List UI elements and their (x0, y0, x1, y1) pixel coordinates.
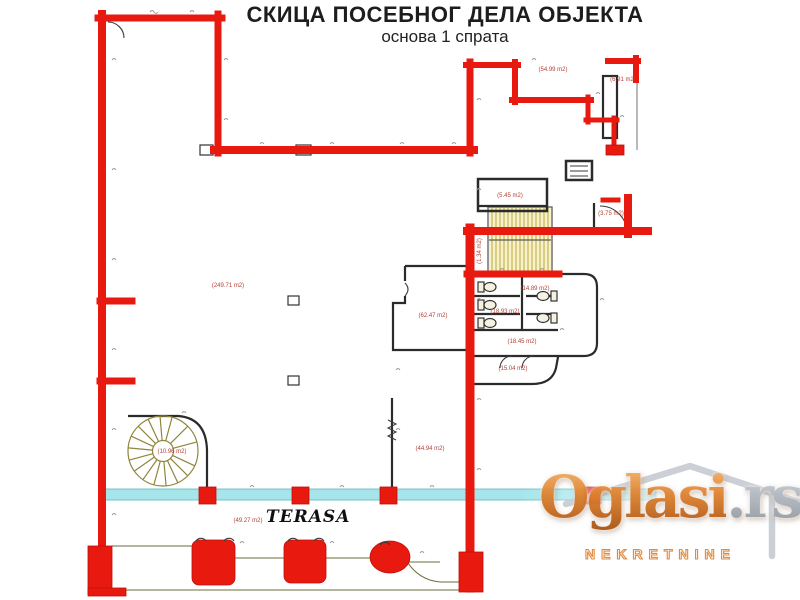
room-label-top-right-small: (6.91 m2) (610, 77, 636, 83)
room-label-office-upper: (62.47 m2) (418, 313, 447, 319)
room-label-main-hall: (249.71 m2) (212, 283, 244, 289)
watermark-brand-tld: .rs (726, 463, 800, 531)
room-label-lower-hall: (15.04 m2) (498, 366, 527, 372)
room-label-anteroom: (18.45 m2) (507, 339, 536, 345)
terrace-caption: TERASA (266, 507, 350, 527)
watermark-oglasi: Oglasi.rs NEKRETNINE (538, 458, 800, 578)
room-label-toilet-right: (14.89 m2) (520, 286, 549, 292)
watermark-tagline: NEKRETNINE (585, 546, 736, 562)
watermark-brand: Oglasi.rs (539, 468, 800, 526)
room-label-toilet-left: (18.93 m2) (490, 309, 519, 315)
room-label-spiral-stair: (10.96 m2) (157, 449, 186, 455)
room-label-stair-landing: (1.34 m2) (477, 238, 483, 264)
room-label-terrace: (49.27 m2) (233, 518, 262, 524)
watermark-brand-name: Oglasi (539, 463, 726, 531)
terrace-planters (192, 538, 410, 585)
floor-plan-page: СКИЦА ПОСЕБНОГ ДЕЛА ОБЈЕКТА основа 1 спр… (0, 0, 800, 600)
room-label-office-lower: (44.94 m2) (415, 446, 444, 452)
interior-walls (108, 22, 637, 490)
main-staircase (488, 207, 552, 273)
room-label-storage: (5.45 m2) (497, 193, 523, 199)
room-label-top-right: (54.99 m2) (538, 67, 567, 73)
room-label-wc-small: (3.75 m2) (598, 211, 624, 217)
